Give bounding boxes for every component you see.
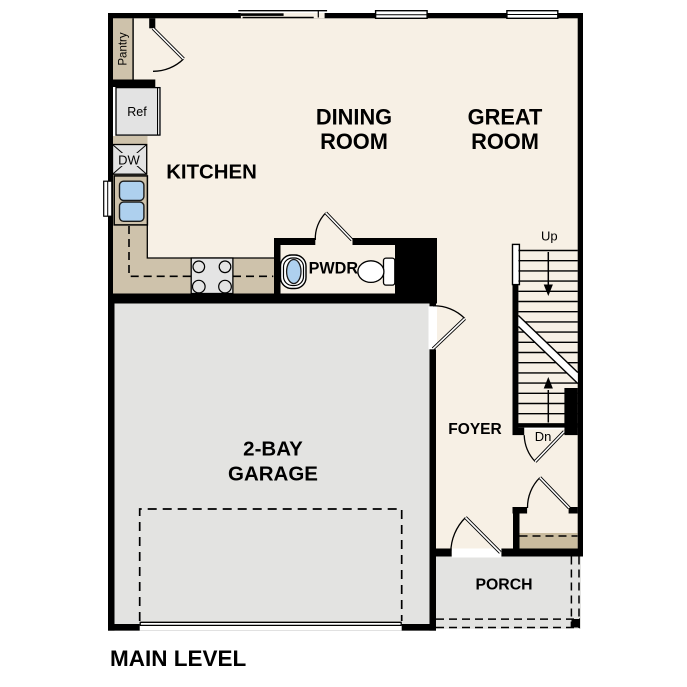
svg-text:ROOM: ROOM xyxy=(471,129,539,154)
svg-text:KITCHEN: KITCHEN xyxy=(166,162,257,184)
svg-text:2-BAY: 2-BAY xyxy=(243,438,303,461)
svg-text:FOYER: FOYER xyxy=(448,421,501,438)
svg-text:Dn: Dn xyxy=(535,429,552,444)
svg-text:GREAT: GREAT xyxy=(468,105,543,130)
svg-text:GARAGE: GARAGE xyxy=(228,462,318,485)
svg-text:PWDR: PWDR xyxy=(309,260,359,278)
svg-text:DW: DW xyxy=(118,153,140,168)
svg-text:ROOM: ROOM xyxy=(320,129,388,154)
svg-text:Up: Up xyxy=(541,229,558,244)
svg-text:PORCH: PORCH xyxy=(475,577,532,594)
svg-text:Ref: Ref xyxy=(127,105,147,119)
svg-text:Pantry: Pantry xyxy=(118,32,130,65)
svg-text:DINING: DINING xyxy=(316,105,392,130)
svg-text:MAIN LEVEL: MAIN LEVEL xyxy=(110,646,247,671)
